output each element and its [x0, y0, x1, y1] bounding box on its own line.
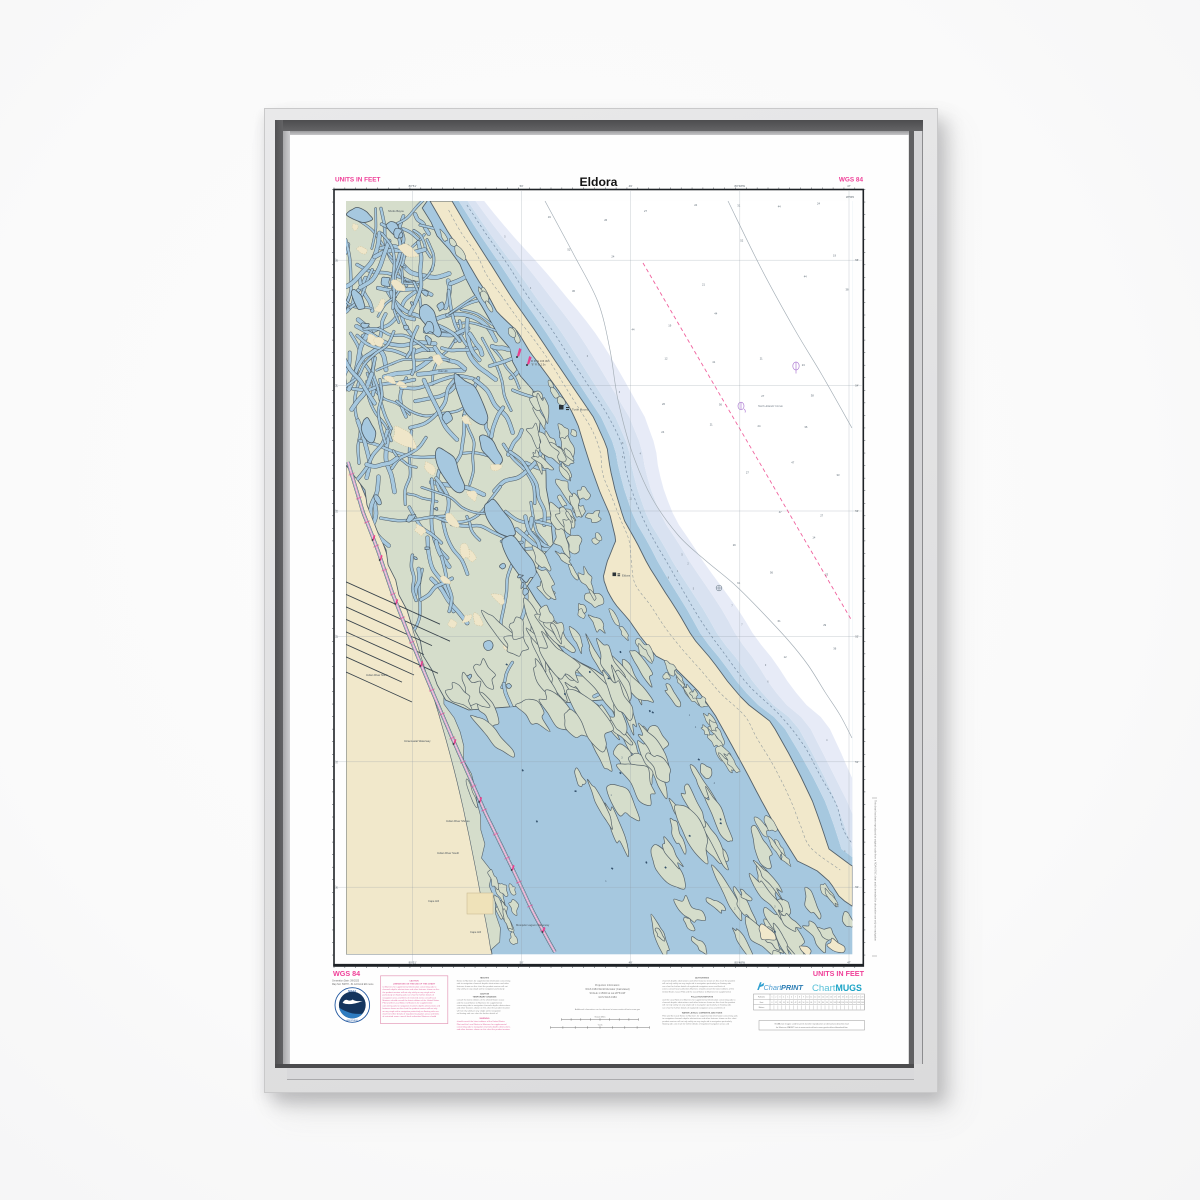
- svg-text:Chart: Chart: [812, 983, 836, 994]
- svg-text:38: 38: [811, 394, 814, 398]
- svg-text:LIMITATIONS ON THE USE OF THIS: LIMITATIONS ON THE USE OF THIS CHART: [393, 983, 436, 986]
- svg-text:navigation areas and limits of: navigation areas and limits of restricte…: [383, 996, 437, 999]
- svg-text:61: 61: [737, 581, 740, 585]
- svg-text:24: 24: [694, 203, 697, 207]
- svg-text:Indian River North: Indian River North: [366, 673, 388, 677]
- svg-text:38: 38: [846, 288, 849, 292]
- svg-text:Turtle Mound: Turtle Mound: [572, 408, 589, 412]
- svg-text:Map Not: 5087H - 81.122 Emd ED: Map Not: 5087H - 81.122 Emd ED metre: [332, 983, 374, 986]
- svg-text:13: 13: [818, 997, 820, 999]
- svg-text:11: 11: [810, 997, 812, 999]
- svg-text:144: 144: [861, 1002, 864, 1004]
- svg-text:United States Coast Pilot and: United States Coast Pilot and the Local …: [662, 990, 731, 993]
- svg-text:61: 61: [778, 619, 781, 623]
- svg-text:49': 49': [629, 184, 633, 188]
- svg-text:24: 24: [661, 430, 664, 434]
- svg-text:27: 27: [746, 471, 749, 475]
- svg-text:23: 23: [802, 363, 805, 367]
- svg-text:41: 41: [712, 360, 715, 364]
- svg-text:CAUTION: CAUTION: [480, 993, 490, 996]
- svg-text:27: 27: [761, 394, 764, 398]
- svg-text:Eldora: Eldora: [622, 574, 631, 578]
- svg-text:114: 114: [841, 1002, 844, 1004]
- svg-text:18: 18: [779, 1002, 781, 1004]
- svg-text:10: 10: [806, 997, 808, 999]
- svg-text:51': 51': [855, 760, 859, 764]
- svg-text:21: 21: [760, 357, 763, 361]
- svg-text:and the Local Notice to Marine: and the Local Notice to Mariners for sup…: [662, 998, 736, 1001]
- svg-text:21: 21: [850, 997, 852, 999]
- svg-text:"8" Fl G 2.5s: "8" Fl G 2.5s: [531, 362, 546, 366]
- svg-text:44: 44: [714, 311, 717, 315]
- svg-text:27: 27: [644, 209, 647, 213]
- svg-text:Additional information can be: Additional information can be obtained a…: [575, 1008, 641, 1011]
- svg-text:52: 52: [567, 248, 570, 252]
- svg-text:Yards: Yards: [598, 1024, 603, 1027]
- svg-text:19: 19: [842, 997, 844, 999]
- svg-text:17: 17: [834, 997, 836, 999]
- svg-text:Indian River South: Indian River South: [437, 851, 460, 855]
- svg-text:138: 138: [857, 1002, 860, 1004]
- svg-text:44: 44: [778, 205, 781, 209]
- svg-text:North Atlantic Ocean: North Atlantic Ocean: [757, 404, 783, 408]
- svg-text:CAUTION: CAUTION: [409, 980, 419, 983]
- svg-text:60: 60: [806, 1002, 808, 1004]
- svg-text:TEMPORARY CHANGES: TEMPORARY CHANGES: [473, 996, 497, 999]
- svg-text:Fl R 4s 16ft 4M: Fl R 4s 16ft 4M: [531, 359, 549, 363]
- svg-text:Shotts Bayou: Shotts Bayou: [388, 209, 404, 213]
- svg-text:to Mariners for supplemental i: to Mariners for supplemental information…: [383, 985, 438, 988]
- svg-text:29: 29: [823, 623, 826, 627]
- svg-text:18: 18: [838, 997, 840, 999]
- svg-text:53': 53': [335, 509, 339, 513]
- svg-text:36: 36: [833, 647, 836, 651]
- svg-text:Intracoastal Waterway: Intracoastal Waterway: [404, 739, 431, 743]
- svg-text:21: 21: [702, 283, 705, 287]
- svg-text:on floating aids see chart for: on floating aids see chart for further d…: [457, 1012, 498, 1015]
- svg-text:prudent mariner will not rely: prudent mariner will not rely solely on …: [662, 1020, 732, 1023]
- svg-text:Generation Date: 3/6/2025: Generation Date: 3/6/2025: [332, 980, 360, 983]
- svg-text:44: 44: [632, 327, 635, 331]
- svg-text:23: 23: [825, 572, 828, 576]
- svg-text:This chart has been reproduced: This chart has been reproduced at origin…: [874, 800, 877, 941]
- svg-text:50': 50': [335, 885, 339, 889]
- svg-text:50': 50': [520, 184, 524, 188]
- svg-text:56: 56: [719, 402, 722, 406]
- svg-text:features shown on this chart t: features shown on this chart the prudent…: [457, 985, 508, 988]
- svg-text:50': 50': [855, 885, 859, 889]
- svg-text:20: 20: [846, 997, 848, 999]
- svg-text:WATER LEVELS, CURRENTS, AND TI: WATER LEVELS, CURRENTS, AND TIDES: [682, 1011, 723, 1014]
- svg-text:concerning aids to navigation: concerning aids to navigation channels d…: [383, 1004, 441, 1007]
- svg-text:WARNING: WARNING: [480, 1017, 490, 1020]
- svg-text:19: 19: [668, 324, 671, 328]
- svg-text:Mariners should consult the la: Mariners should consult the latest editi…: [383, 999, 440, 1002]
- svg-text:66: 66: [810, 1002, 812, 1004]
- svg-text:9: 9: [803, 997, 804, 999]
- svg-text:47': 47': [847, 184, 851, 188]
- svg-text:Projection Information:: Projection Information:: [595, 984, 620, 987]
- svg-text:3: 3: [779, 997, 780, 999]
- svg-text:22: 22: [854, 997, 856, 999]
- svg-text:24: 24: [758, 424, 761, 428]
- svg-text:132: 132: [853, 1002, 856, 1004]
- svg-text:29: 29: [733, 543, 736, 547]
- svg-text:GCS WGS 1984: GCS WGS 1984: [598, 996, 617, 999]
- svg-text:12: 12: [775, 1002, 777, 1004]
- svg-text:78: 78: [818, 1002, 820, 1004]
- svg-text:19: 19: [548, 215, 551, 219]
- svg-text:channels depths obstructions a: channels depths obstructions and other f…: [662, 1001, 735, 1004]
- svg-text:102: 102: [833, 1002, 836, 1004]
- svg-text:Chart: Chart: [764, 983, 783, 992]
- svg-text:96: 96: [830, 1002, 832, 1004]
- svg-text:WGS 1984 World Mercator (Calcu: WGS 1984 World Mercator (Calculated): [585, 988, 629, 991]
- svg-text:16: 16: [830, 997, 832, 999]
- svg-text:HEIGHTS: HEIGHTS: [480, 978, 490, 980]
- svg-text:24: 24: [783, 1002, 785, 1004]
- svg-text:12: 12: [784, 655, 787, 659]
- svg-text:will not rely solely on any si: will not rely solely on any single aid t…: [457, 1009, 501, 1012]
- svg-text:52': 52': [335, 634, 339, 638]
- svg-text:should consult the latest edit: should consult the latest editions of th…: [457, 1020, 505, 1023]
- svg-text:chart for further details of r: chart for further details of regulated n…: [383, 1013, 440, 1016]
- svg-text:33: 33: [837, 473, 840, 477]
- svg-text:PRINT: PRINT: [781, 983, 803, 992]
- svg-text:rely solely on any single aid: rely solely on any single aid to navigat…: [457, 988, 506, 991]
- svg-text:14: 14: [822, 997, 824, 999]
- svg-text:28°56'N: 28°56'N: [846, 197, 854, 199]
- svg-text:27: 27: [820, 513, 823, 517]
- svg-text:21: 21: [710, 423, 713, 427]
- svg-text:44: 44: [804, 275, 807, 279]
- svg-text:and other features shown on th: and other features shown on this chart t…: [457, 1028, 511, 1031]
- svg-text:84: 84: [822, 1002, 824, 1004]
- svg-text:Mosquito Lagoon Waterway: Mosquito Lagoon Waterway: [516, 923, 550, 927]
- svg-text:1: 1: [772, 997, 773, 999]
- svg-text:14: 14: [812, 536, 815, 540]
- svg-text:47': 47': [847, 961, 851, 965]
- svg-text:see chart for further details: see chart for further details of regulat…: [662, 1006, 725, 1009]
- svg-text:53': 53': [855, 509, 859, 513]
- svg-text:52': 52': [855, 634, 859, 638]
- svg-text:55': 55': [335, 258, 339, 262]
- svg-text:56: 56: [770, 570, 773, 574]
- svg-text:MUGS: MUGS: [836, 983, 863, 993]
- svg-text:UNITS IN FEET: UNITS IN FEET: [813, 969, 865, 978]
- svg-text:23: 23: [857, 997, 859, 999]
- svg-text:24: 24: [611, 255, 614, 259]
- svg-text:Fathoms: Fathoms: [758, 996, 765, 999]
- svg-text:54': 54': [855, 384, 859, 388]
- svg-text:49': 49': [629, 961, 633, 965]
- svg-text:5: 5: [787, 997, 788, 999]
- svg-text:47: 47: [791, 461, 794, 465]
- svg-text:54': 54': [335, 383, 339, 387]
- svg-text:126: 126: [849, 1002, 852, 1004]
- svg-text:consult the latest editions of: consult the latest editions of the Unite…: [457, 999, 505, 1002]
- svg-text:Cape Hill: Cape Hill: [428, 899, 439, 903]
- svg-text:the prudent mariner will not r: the prudent mariner will not rely solely…: [383, 991, 436, 994]
- svg-text:Indian River Shores: Indian River Shores: [446, 819, 470, 823]
- svg-text:108: 108: [837, 1002, 840, 1004]
- svg-text:concerning aids to navigation: concerning aids to navigation channels d…: [457, 1026, 511, 1029]
- svg-text:to navigation channels depths: to navigation channels depths obstructio…: [662, 1017, 737, 1020]
- svg-text:7: 7: [795, 997, 796, 999]
- svg-text:24: 24: [861, 997, 863, 999]
- svg-text:NOAA: NOAA: [348, 990, 356, 993]
- svg-text:12: 12: [665, 357, 668, 361]
- svg-text:19: 19: [833, 254, 836, 258]
- svg-text:120: 120: [845, 1002, 848, 1004]
- svg-text:see chart for further details: see chart for further details of regulat…: [662, 985, 725, 988]
- svg-text:26: 26: [604, 218, 607, 222]
- svg-text:42: 42: [795, 1002, 797, 1004]
- svg-text:and the Local Notice to Marine: and the Local Notice to Mariners for sup…: [457, 1001, 503, 1004]
- svg-text:will not rely solely on any si: will not rely solely on any single aid t…: [662, 982, 731, 985]
- svg-text:6: 6: [772, 1002, 773, 1004]
- svg-text:15: 15: [826, 997, 828, 999]
- svg-text:80°48'W: 80°48'W: [735, 184, 746, 188]
- svg-text:4: 4: [783, 997, 784, 999]
- svg-text:UNITS IN FEET: UNITS IN FEET: [335, 177, 381, 184]
- svg-text:Eldora: Eldora: [580, 175, 618, 189]
- svg-text:particularly on floating aids: particularly on floating aids see chart …: [383, 994, 435, 997]
- svg-text:zones consult local authoritie: zones consult local authorities Mariners…: [662, 988, 735, 991]
- svg-text:48: 48: [799, 1002, 801, 1004]
- svg-text:will not rely solely on any si: will not rely solely on any single aid t…: [662, 1004, 731, 1007]
- svg-text:Pilot and the Local Notice to: Pilot and the Local Notice to Mariners f…: [457, 1023, 507, 1026]
- svg-text:WGS 84: WGS 84: [839, 177, 864, 184]
- svg-text:Pilot and the Local Notice to: Pilot and the Local Notice to Mariners f…: [662, 1014, 737, 1017]
- svg-text:51': 51': [335, 760, 339, 764]
- svg-text:80°51': 80°51': [409, 961, 417, 965]
- svg-text:72: 72: [814, 1002, 816, 1004]
- svg-text:aids to navigation channels de: aids to navigation channels depths obstr…: [457, 982, 510, 985]
- svg-text:36: 36: [572, 289, 575, 293]
- svg-text:channels depths obstructions a: channels depths obstructions and other f…: [662, 980, 735, 983]
- svg-text:12: 12: [814, 997, 816, 999]
- svg-text:Statute Miles: Statute Miles: [595, 1016, 606, 1019]
- svg-text:Cape Hill: Cape Hill: [470, 930, 481, 934]
- svg-text:6: 6: [791, 997, 792, 999]
- svg-text:for Mariners WASNT lost at www: for Mariners WASNT lost at www.nauticalc…: [776, 1026, 848, 1029]
- svg-text:50': 50': [520, 961, 524, 965]
- svg-text:Oak Hill: Oak Hill: [438, 369, 448, 373]
- svg-text:Pilot and the Local Notice to: Pilot and the Local Notice to Mariners f…: [383, 1002, 433, 1005]
- svg-text:8: 8: [799, 997, 800, 999]
- svg-text:Bissett Bay: Bissett Bay: [404, 279, 418, 283]
- svg-text:Notice to Mariners for supplem: Notice to Mariners for supplemental info…: [457, 980, 511, 983]
- svg-text:POLLUTION REPORTS: POLLUTION REPORTS: [691, 996, 714, 998]
- svg-text:54: 54: [802, 1002, 804, 1004]
- svg-text:30: 30: [787, 1002, 789, 1004]
- svg-text:SCALE 1:15000 at Lat 28°54.08: SCALE 1:15000 at Lat 28°54.08': [589, 992, 626, 995]
- svg-text:36: 36: [791, 1002, 793, 1004]
- svg-text:80°51': 80°51': [409, 184, 417, 188]
- svg-text:channels depths obstructions a: channels depths obstructions and other f…: [383, 988, 440, 991]
- svg-text:80°48'W: 80°48'W: [735, 961, 746, 965]
- svg-text:Feet: Feet: [760, 1001, 764, 1004]
- svg-text:36: 36: [804, 425, 807, 429]
- svg-text:features shown on this chart t: features shown on this chart the prudent…: [383, 1007, 439, 1010]
- svg-text:on any single aid to navigatio: on any single aid to navigation particul…: [383, 1010, 440, 1013]
- svg-text:26: 26: [662, 402, 665, 406]
- svg-text:of restricted zones consult lo: of restricted zones consult local author…: [383, 1015, 437, 1018]
- svg-text:Meters: Meters: [759, 1006, 765, 1009]
- svg-text:concerning aids to navigation: concerning aids to navigation channels d…: [457, 1004, 511, 1007]
- svg-text:floating aids see chart for fu: floating aids see chart for further deta…: [662, 1023, 729, 1026]
- svg-text:90: 90: [826, 1002, 828, 1004]
- svg-text:NOAA true images used for prin: NOAA true images used for prints transfe…: [775, 1023, 850, 1026]
- svg-text:47: 47: [779, 510, 782, 514]
- svg-text:and other features shown on th: and other features shown on this chart t…: [457, 1007, 511, 1010]
- svg-text:31: 31: [737, 203, 740, 207]
- svg-text:2: 2: [775, 997, 776, 999]
- svg-text:55': 55': [855, 258, 859, 262]
- svg-text:WGS 84: WGS 84: [333, 969, 360, 978]
- svg-text:52: 52: [740, 238, 743, 242]
- svg-text:24: 24: [817, 202, 820, 206]
- svg-text:AUTHORITIES: AUTHORITIES: [695, 977, 710, 980]
